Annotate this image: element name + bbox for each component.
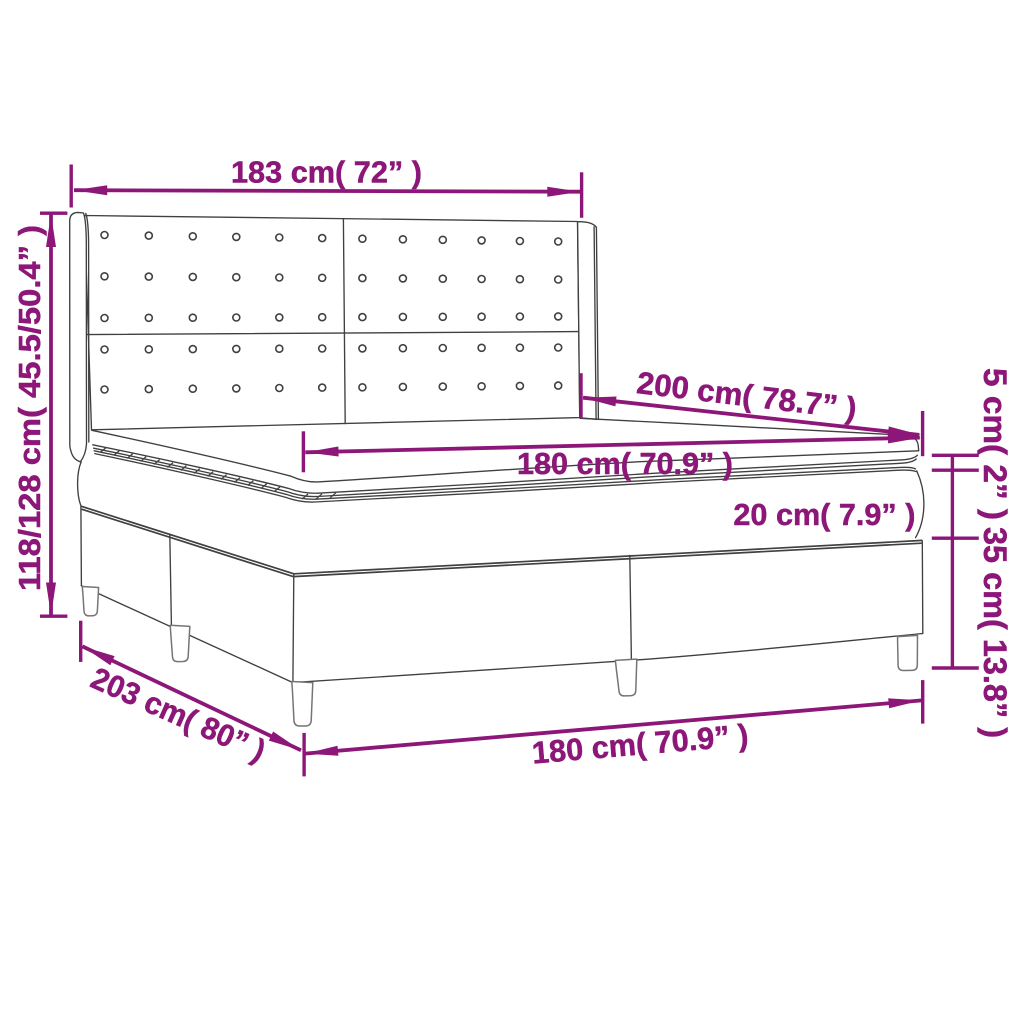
- svg-text:35 cm( 13.8” ): 35 cm( 13.8” ): [977, 527, 1013, 738]
- svg-text:183 cm( 72” ): 183 cm( 72” ): [231, 155, 422, 190]
- svg-text:5 cm( 2” ): 5 cm( 2” ): [977, 368, 1013, 520]
- svg-text:180 cm( 70.9” ): 180 cm( 70.9” ): [517, 446, 733, 481]
- svg-text:118/128 cm( 45.5/50.4” ): 118/128 cm( 45.5/50.4” ): [12, 225, 47, 591]
- svg-text:20 cm( 7.9” ): 20 cm( 7.9” ): [733, 497, 915, 532]
